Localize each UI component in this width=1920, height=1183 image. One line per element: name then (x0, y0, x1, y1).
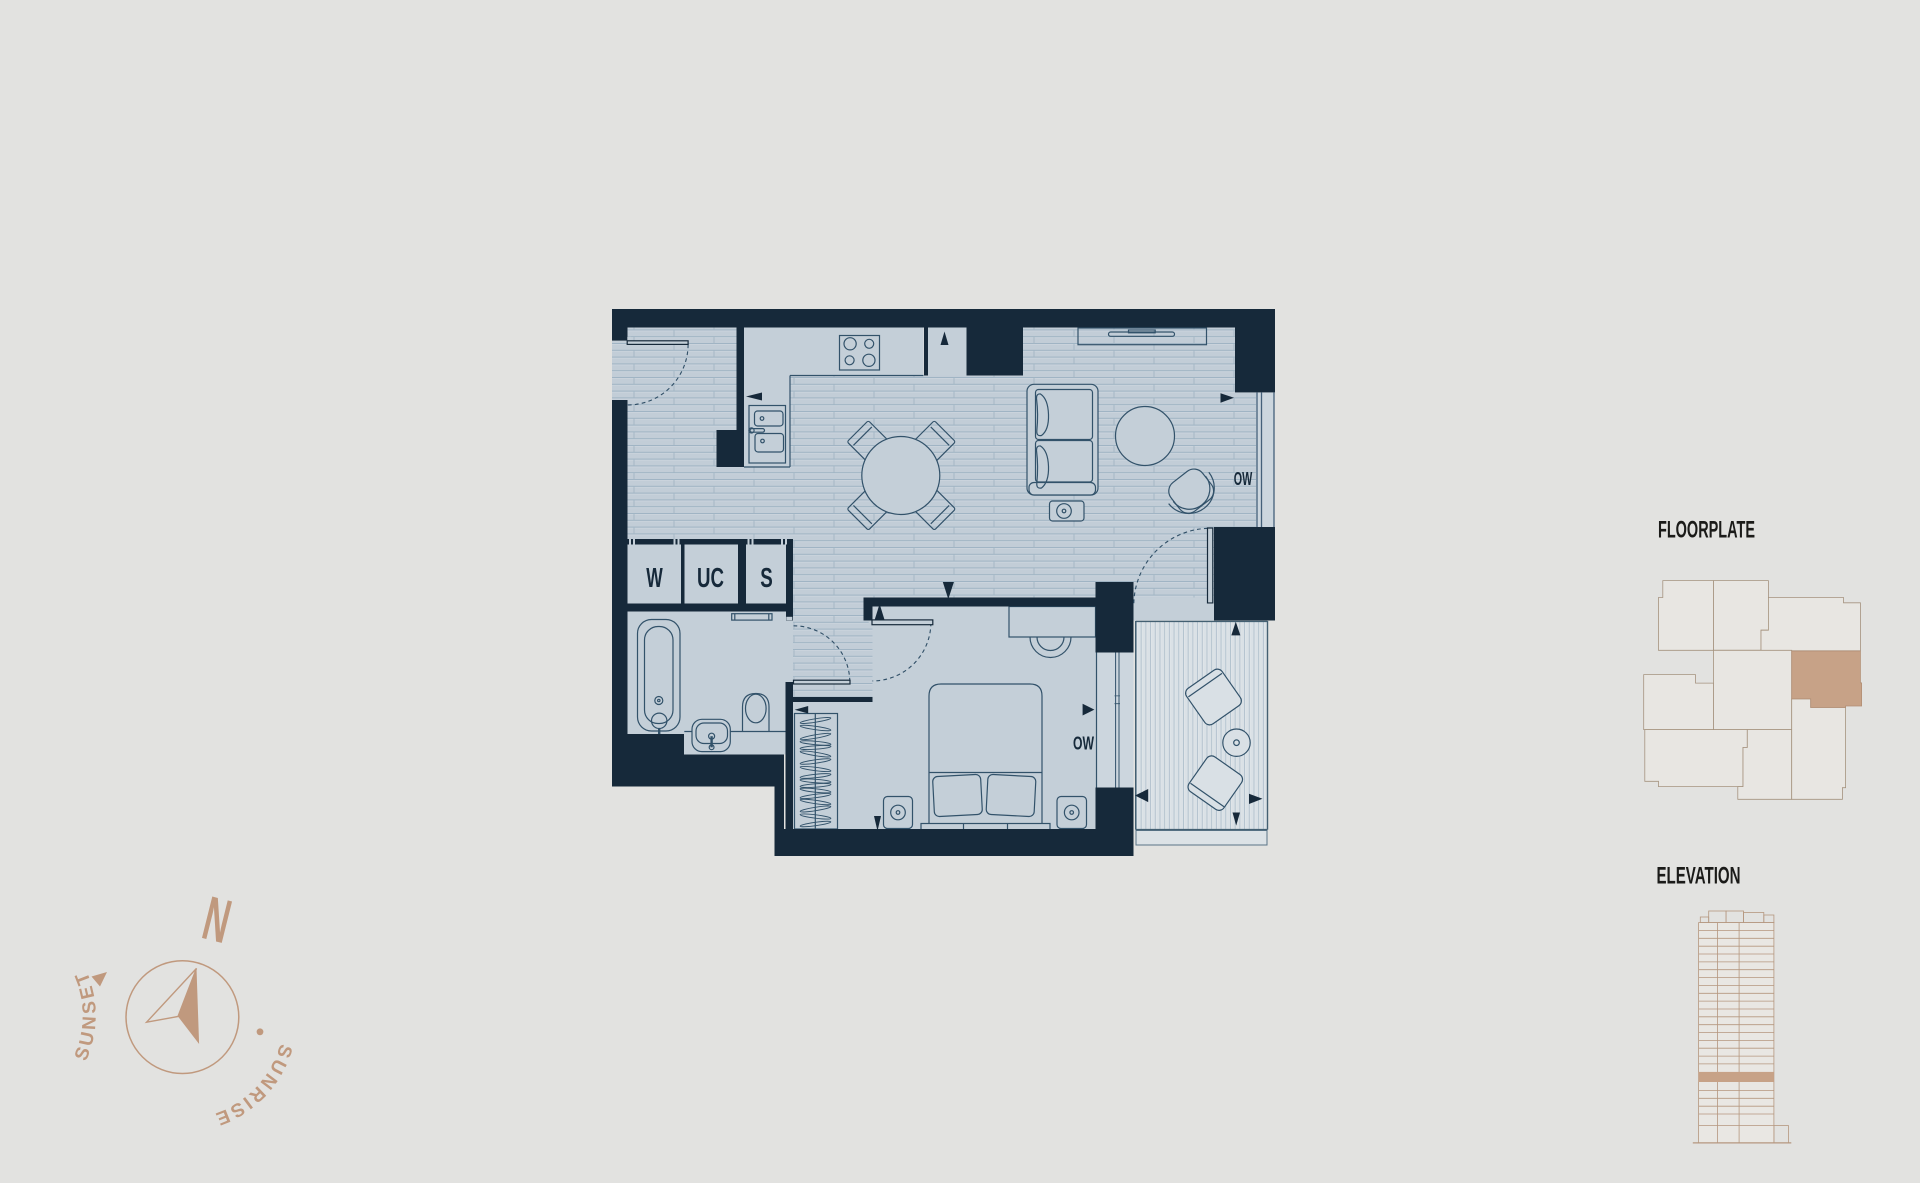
svg-text:OW: OW (1073, 733, 1094, 754)
svg-text:UC: UC (697, 562, 724, 593)
svg-text:ELEVATION: ELEVATION (1657, 863, 1741, 890)
svg-text:OW: OW (1234, 469, 1253, 489)
svg-text:S: S (760, 562, 773, 593)
svg-text:W: W (646, 562, 663, 593)
svg-text:FLOORPLATE: FLOORPLATE (1658, 517, 1755, 544)
